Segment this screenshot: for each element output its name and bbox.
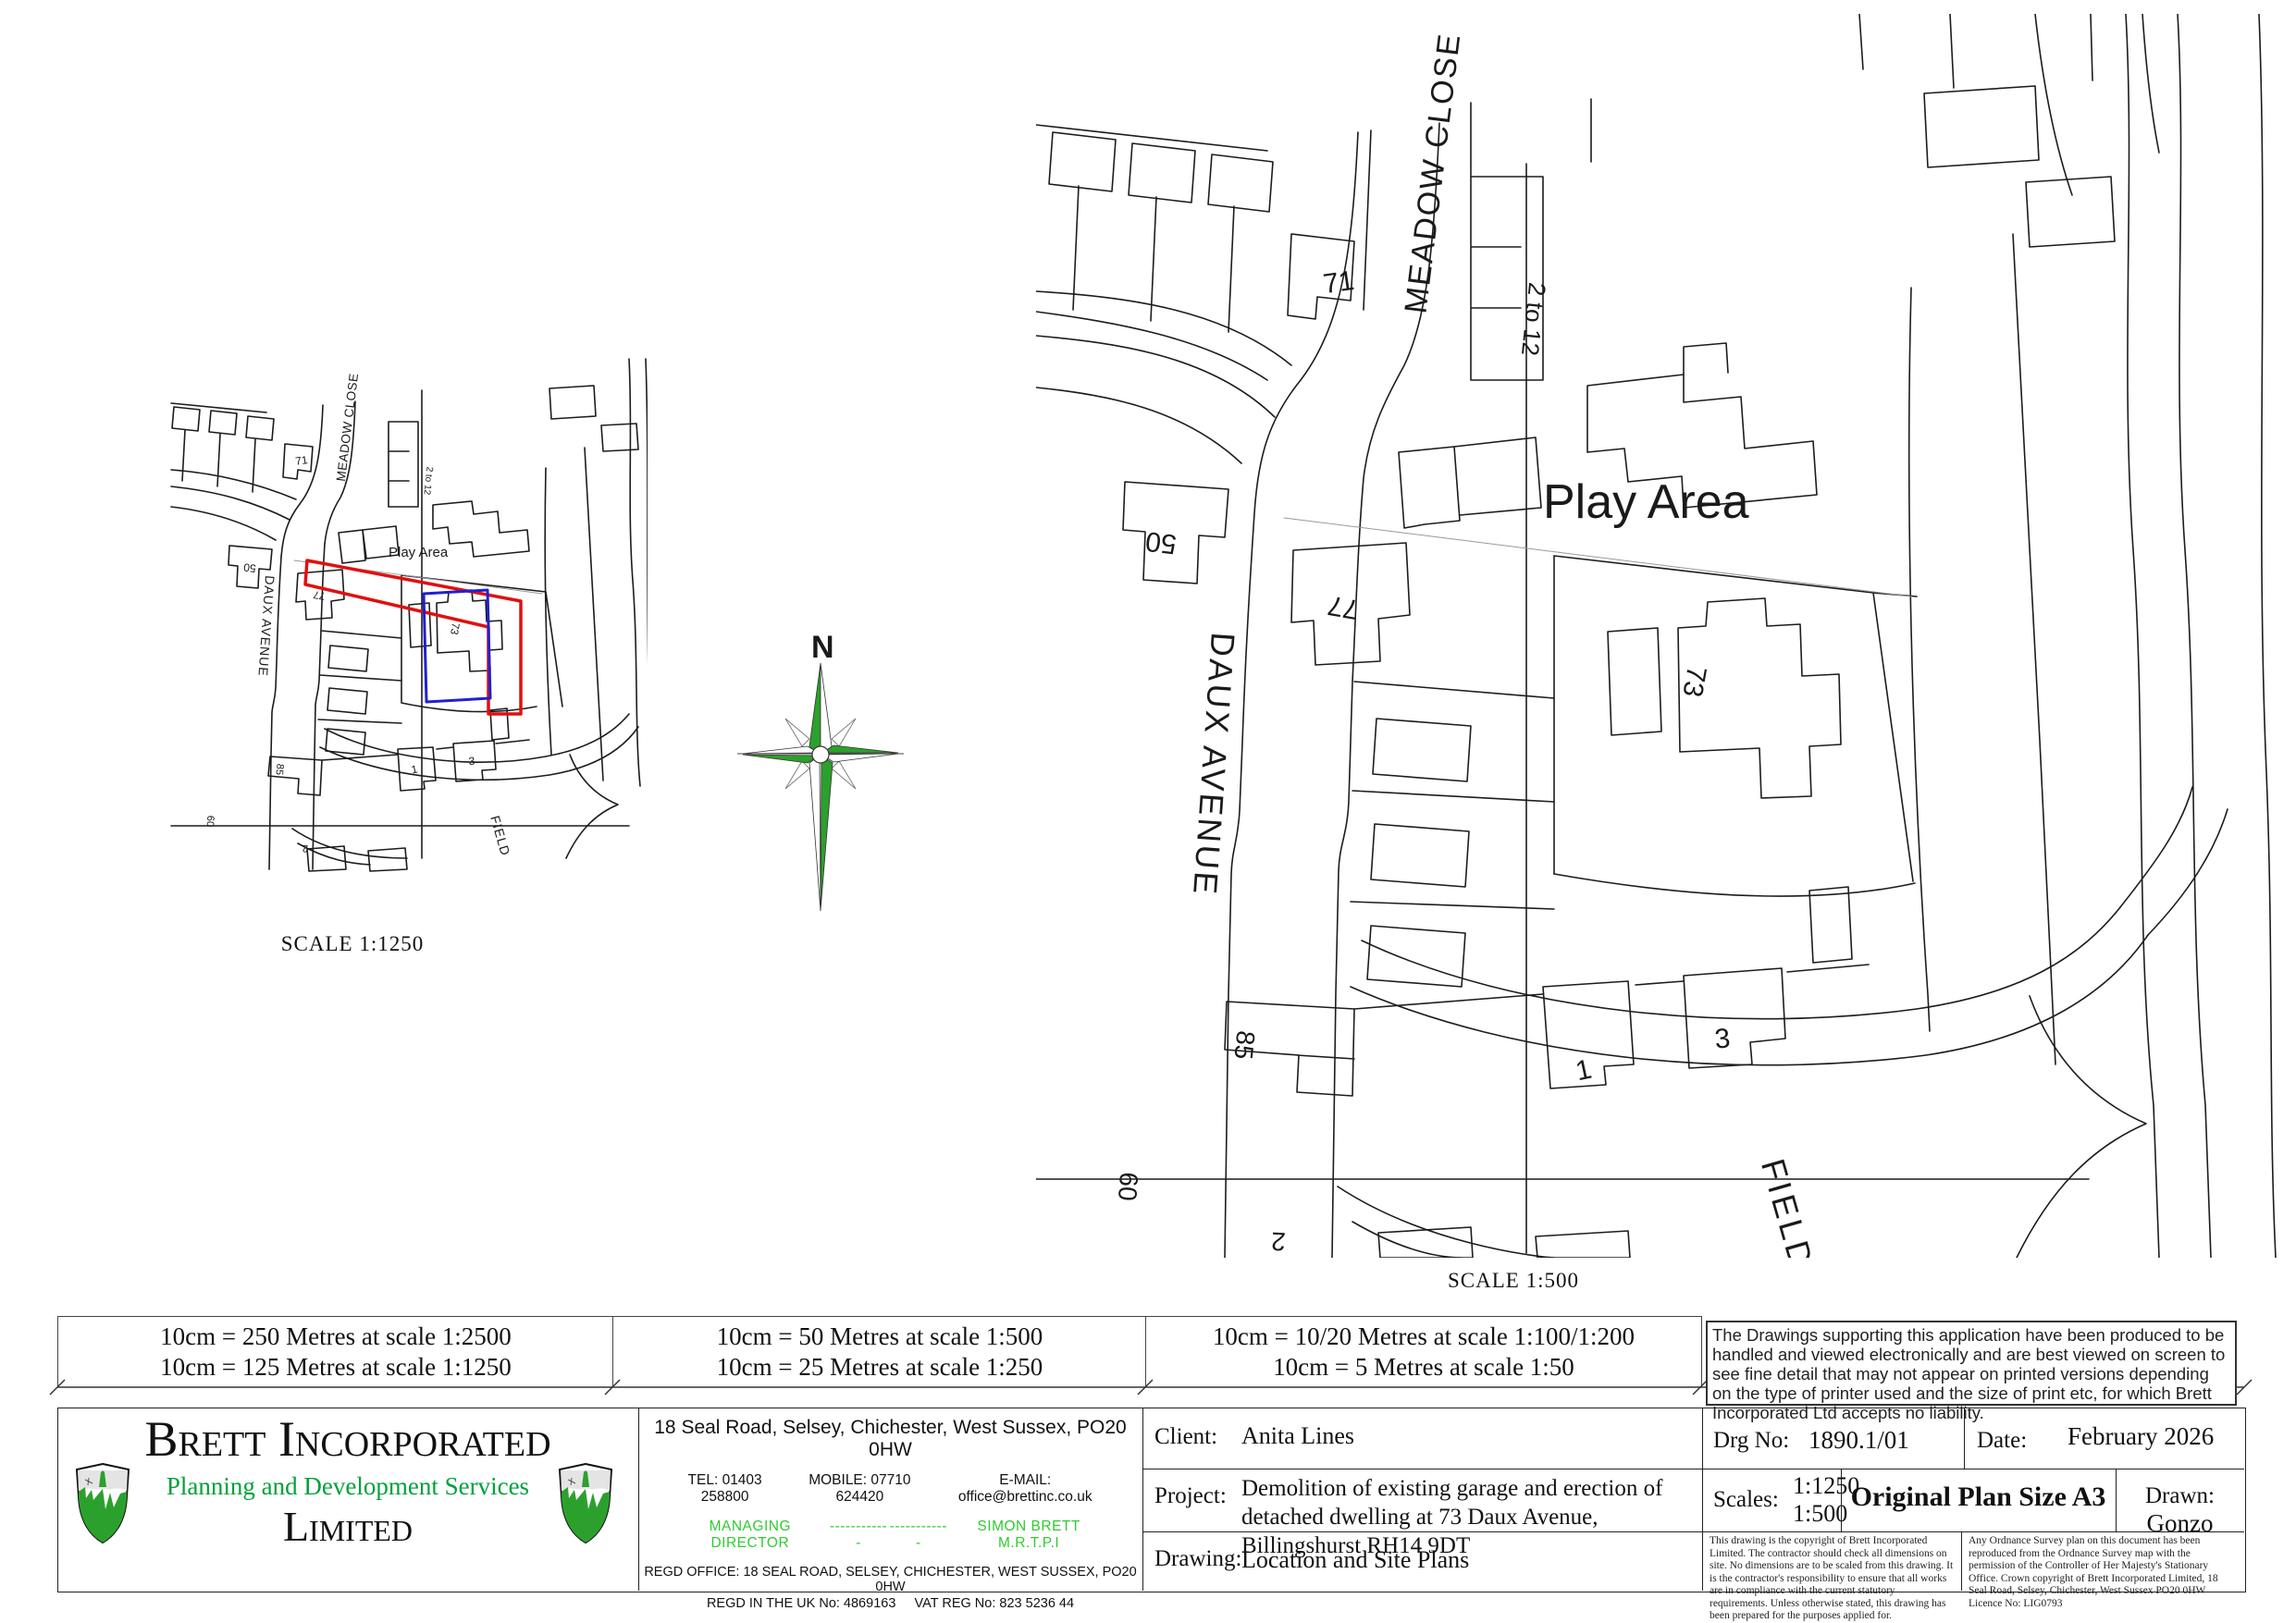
map-label-50: 50 (1143, 525, 1178, 559)
building (2026, 177, 2115, 247)
stream-line (2126, 14, 2159, 1258)
road-edge (2148, 809, 2228, 935)
company-email: E-MAIL: office@brettinc.co.uk (933, 1472, 1117, 1506)
company-shield-icon (72, 1461, 133, 1546)
compass-hub (812, 746, 829, 763)
boundary-line (585, 448, 603, 781)
map-label-1: 1 (410, 762, 419, 776)
parcel-line (182, 430, 255, 492)
outbuilding (1809, 887, 1852, 963)
scale-text: 10cm = 250 Metres at scale 1:2500 (160, 1322, 512, 1352)
building (1049, 132, 1273, 212)
company-suffix: Limited (57, 1504, 638, 1550)
road-edge (1036, 291, 1291, 365)
road-edge (281, 405, 323, 557)
site-parcel (1873, 593, 1913, 881)
os-licence-note: Any Ordnance Survey plan on this documen… (1969, 1535, 2239, 1610)
date-label: Date: (1977, 1428, 2027, 1454)
map-label-1: 1 (1573, 1054, 1594, 1088)
building (1454, 437, 1541, 515)
stream-line (629, 359, 640, 786)
building (172, 407, 200, 431)
road-edge (171, 486, 290, 520)
map-label-71: 71 (1321, 265, 1356, 300)
stream-line (2259, 14, 2276, 1258)
small-map-scale-caption: SCALE 1:1250 (274, 932, 431, 956)
road-edge (1036, 387, 1241, 463)
stream-line (2035, 14, 2159, 195)
drawn-label: Drawn: (2145, 1483, 2215, 1508)
map-label-85: 85 (1228, 1029, 1260, 1061)
project-label: Project: (1154, 1483, 1227, 1509)
road-edge (171, 507, 276, 540)
electronic-viewing-disclaimer: The Drawings supporting this application… (1706, 1321, 2237, 1406)
title-block-divider (1961, 1531, 1962, 1591)
drawing-value: Location and Site Plans (1241, 1546, 1469, 1574)
title-block-divider (1964, 1408, 1965, 1469)
map-label-73: 73 (448, 621, 461, 635)
map-label-85: 85 (273, 763, 285, 775)
parcel-line (1036, 125, 1267, 151)
company-contact-cell: 18 Seal Road, Selsey, Chichester, West S… (638, 1408, 1142, 1591)
terrace-2-12 (389, 422, 418, 507)
map-label-3: 3 (468, 755, 475, 768)
scales-label: Scales: (1713, 1487, 1779, 1513)
parcel-line (1354, 965, 1869, 1009)
map-label-2: 2 (1270, 1227, 1286, 1257)
title-block-divider (1702, 1408, 1703, 1591)
vat-no: VAT REG No: 823 5236 44 (915, 1596, 1075, 1611)
map-label-71: 71 (294, 453, 308, 468)
road-edge (1036, 336, 1275, 417)
building (1684, 343, 1728, 375)
company-name: Brett Incorporated (57, 1411, 638, 1467)
map-label-play-area: Play Area (389, 545, 449, 560)
company-mobile: MOBILE: 07710 624420 (785, 1472, 933, 1506)
map-label-2: 2 (302, 842, 309, 854)
map-label-77: 77 (1326, 589, 1362, 624)
map-label-77: 77 (313, 588, 327, 601)
road-edge (2120, 787, 2192, 907)
dash-rule: ------------ (888, 1518, 948, 1552)
building (1924, 86, 2039, 167)
company-tel: TEL: 01403 258800 (664, 1472, 785, 1506)
map-label-daux-avenue: DAUX AVENUE (255, 575, 278, 677)
company-tagline: Planning and Development Services (57, 1470, 638, 1502)
parcel-line (1471, 99, 1591, 177)
map-label-2to12: 2 to 12 (1516, 281, 1551, 357)
map-label-2to12: 2 to 12 (421, 466, 434, 496)
location-map-1250: 71 MEADOW CLOSE 2 to 12 Play Area 50 77 … (167, 351, 648, 953)
scale-text: 10cm = 50 Metres at scale 1:500 (717, 1322, 1043, 1352)
building (549, 386, 596, 419)
client-value: Anita Lines (1241, 1422, 1354, 1450)
road-edge (1362, 907, 2120, 1019)
map-label-60: 60 (204, 815, 216, 827)
dash-rule: ------------ (829, 1518, 889, 1552)
boundary-line (1909, 288, 1930, 1031)
road-edge (1364, 130, 1371, 310)
road-edge (320, 727, 638, 780)
map-label-60: 60 (1113, 1171, 1143, 1201)
stream-line (2178, 14, 2211, 1258)
drawing-sheet: 71 MEADOW CLOSE 2 to 12 Play Area 50 77 … (0, 0, 2296, 1623)
building (339, 530, 365, 563)
large-map-scale-caption: SCALE 1:500 (1421, 1269, 1606, 1293)
building (1399, 447, 1460, 528)
date-value: February 2026 (2068, 1422, 2214, 1451)
regd-no: REGD IN THE UK No: 4869163 (707, 1596, 895, 1611)
road-edge (1338, 1187, 1554, 1258)
stream-line (646, 359, 648, 721)
building-73 (437, 590, 502, 671)
company-shield-icon (555, 1461, 616, 1546)
map-label-meadow-close: MEADOW CLOSE (334, 373, 361, 483)
site-plan-500: 71 MEADOW CLOSE 2 to 12 Play Area 50 77 … (1036, 14, 2294, 1258)
building (307, 846, 407, 871)
building (246, 416, 274, 440)
drawn-value: Gonzo (2147, 1509, 2214, 1537)
drg-no-value: 1890.1/01 (1808, 1426, 1909, 1455)
company-logo-cell: Brett Incorporated Planning and Developm… (57, 1408, 638, 1591)
map-label-3: 3 (1713, 1023, 1732, 1054)
scales-value-2: 1:500 (1793, 1500, 1847, 1528)
map-label-50: 50 (242, 560, 256, 575)
map-label-field: FIELD (488, 814, 513, 857)
building (1367, 719, 1471, 987)
map-label-field: FIELD (1754, 1155, 1821, 1258)
parcel-line (318, 631, 401, 723)
proposed-dwelling-blue (424, 590, 490, 702)
compass-rose: N (735, 606, 911, 925)
parcel-line (1073, 186, 1234, 332)
parcel-line (1036, 312, 1267, 380)
boundary-line (2013, 234, 2055, 1064)
plan-size: Original Plan Size A3 (1841, 1482, 2116, 1513)
building (1608, 628, 1661, 735)
regd-office: REGD OFFICE: 18 SEAL ROAD, SELSEY, CHICH… (638, 1565, 1142, 1594)
managing-director-name: SIMON BRETT M.R.T.P.I (948, 1518, 1109, 1552)
compass-main-points (743, 663, 898, 911)
road-edge (2017, 996, 2146, 1258)
road-edge (171, 470, 296, 499)
drg-no-label: Drg No: (1713, 1428, 1789, 1454)
map-label-daux-avenue: DAUX AVENUE (1186, 631, 1242, 898)
parcel-line (1351, 682, 1554, 909)
road-edge (292, 829, 407, 865)
client-label: Client: (1154, 1424, 1217, 1450)
road-edge (1352, 1222, 1462, 1258)
site-parcel (1554, 874, 1915, 896)
map-label-73: 73 (1676, 664, 1711, 700)
road-edge (1225, 132, 1358, 1258)
title-block-divider (1142, 1408, 1143, 1591)
title-block-divider (1142, 1469, 2244, 1469)
track-line (1284, 518, 1911, 596)
parcel-line (322, 740, 529, 760)
building (1378, 1227, 1630, 1258)
copyright-note: This drawing is the copyright of Brett I… (1710, 1535, 1954, 1623)
building (209, 411, 237, 435)
map-label-play-area: Play Area (1543, 475, 1749, 529)
map-label-meadow-close: MEADOW CLOSE (1399, 31, 1468, 315)
parcel-line (1859, 14, 2092, 88)
scale-text: 10cm = 10/20 Metres at scale 1:100/1:200 (1213, 1322, 1635, 1352)
managing-director-label: MANAGING DIRECTOR (672, 1518, 829, 1552)
compass-north-label: N (811, 630, 834, 665)
company-address: 18 Seal Road, Selsey, Chichester, West S… (638, 1417, 1142, 1461)
drawing-label: Drawing: (1154, 1546, 1241, 1572)
building (601, 424, 638, 451)
